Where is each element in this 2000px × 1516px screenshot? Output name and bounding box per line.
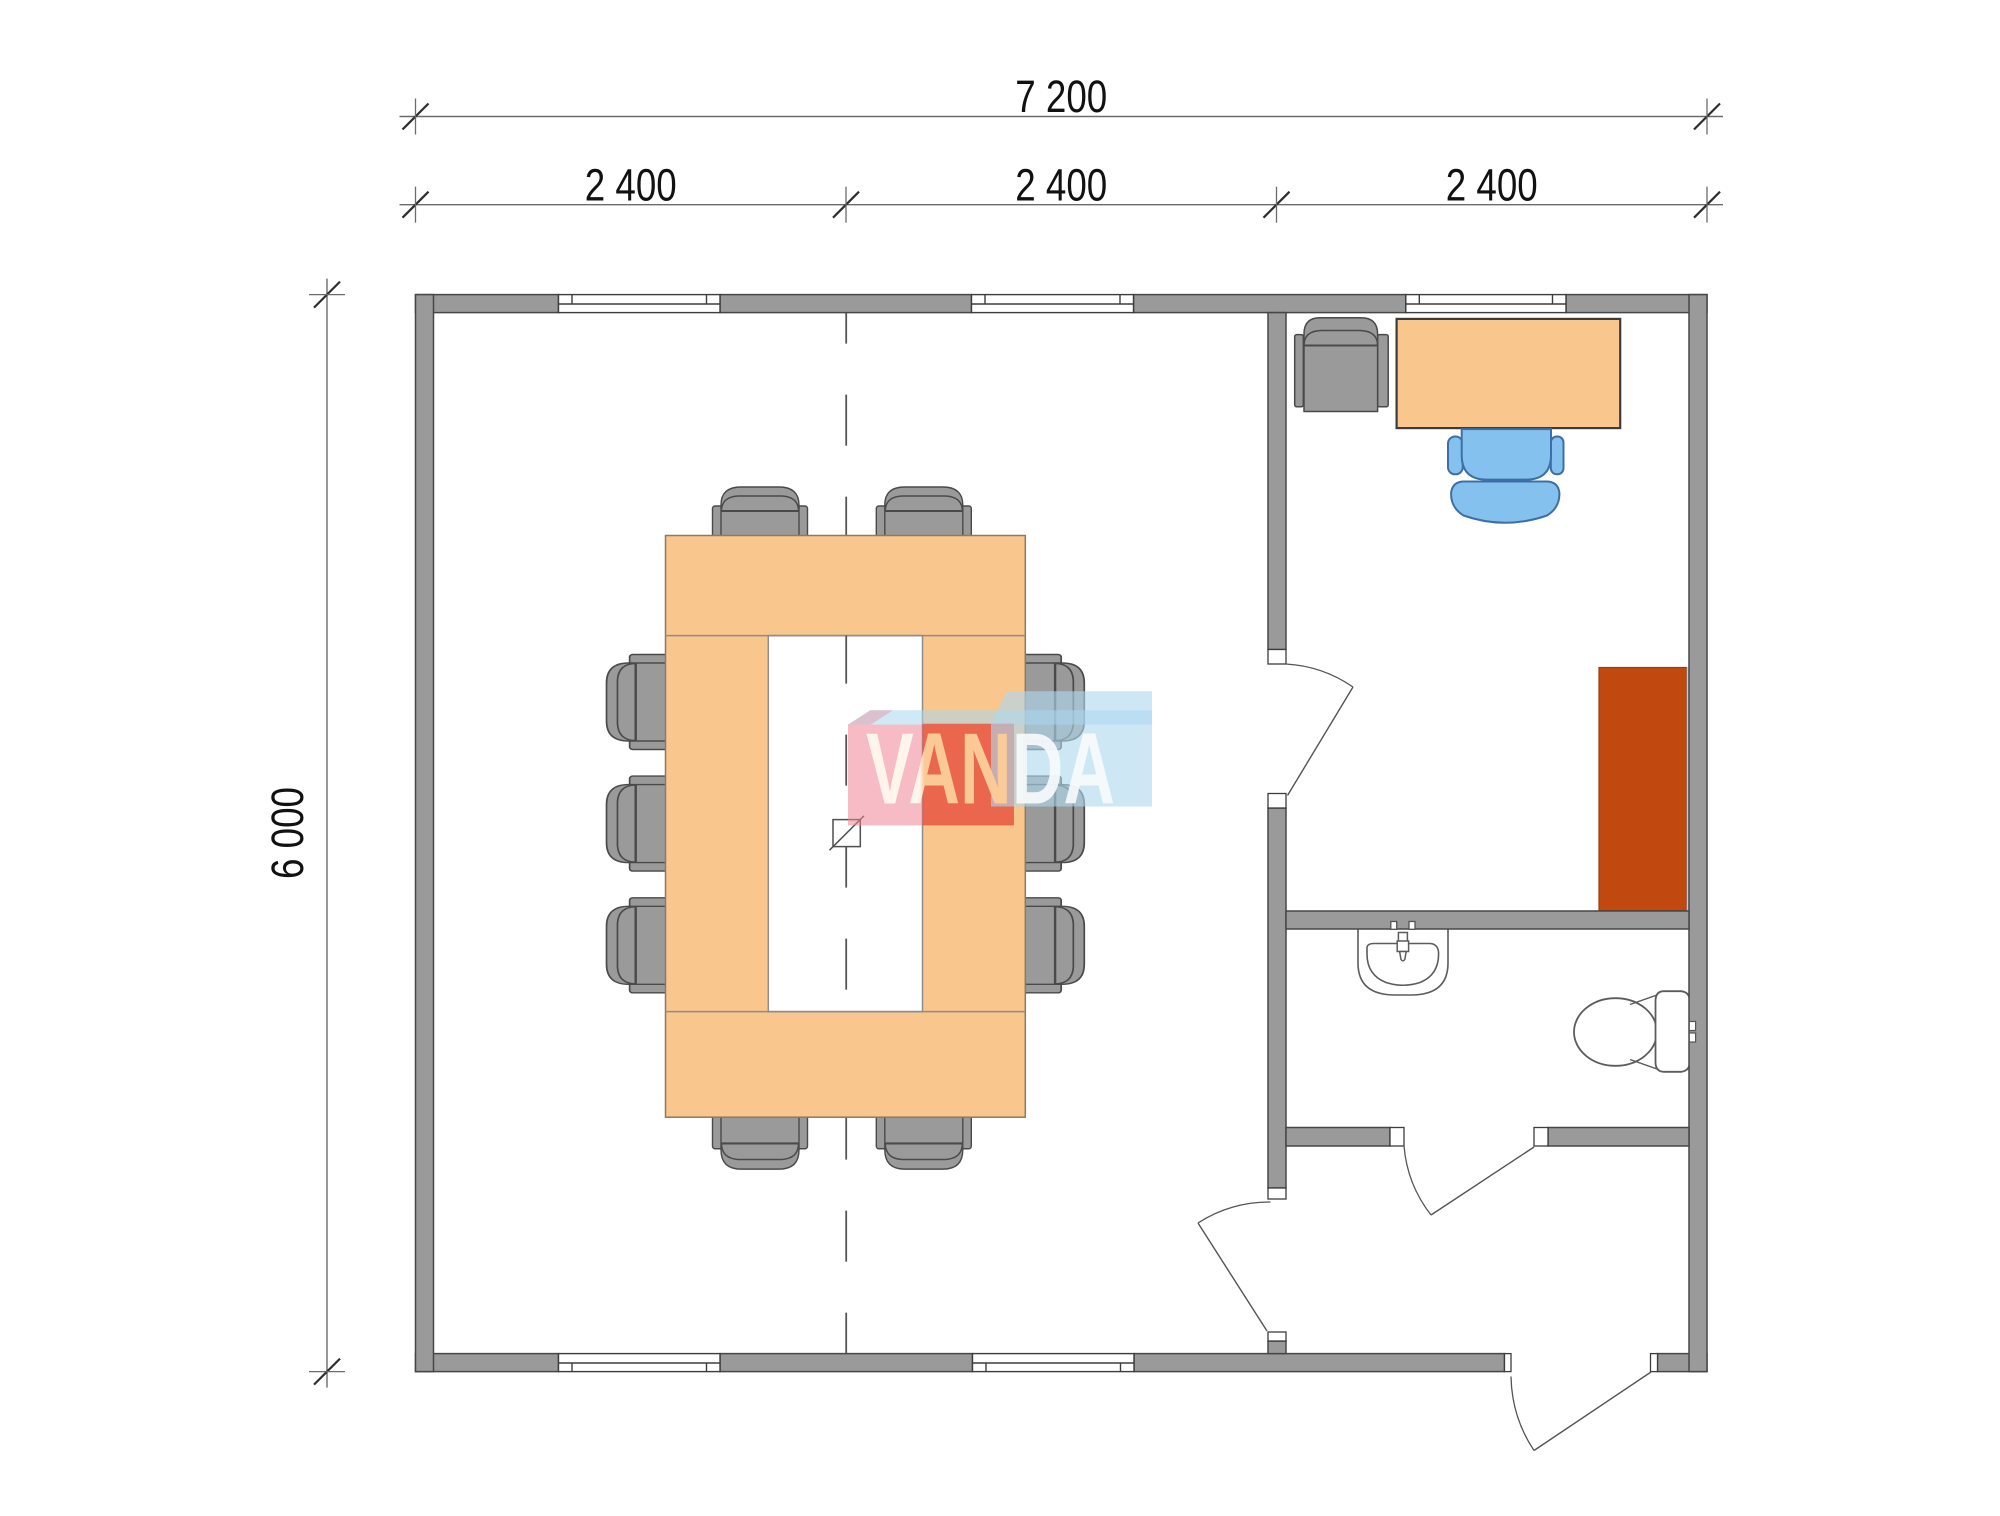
svg-text:2 400: 2 400 [1015, 160, 1107, 211]
svg-text:6 000: 6 000 [262, 787, 313, 879]
svg-text:7 200: 7 200 [1015, 71, 1107, 122]
svg-text:2 400: 2 400 [585, 160, 677, 211]
svg-text:2 400: 2 400 [1446, 160, 1538, 211]
svg-text:VANDA: VANDA [866, 714, 1115, 826]
